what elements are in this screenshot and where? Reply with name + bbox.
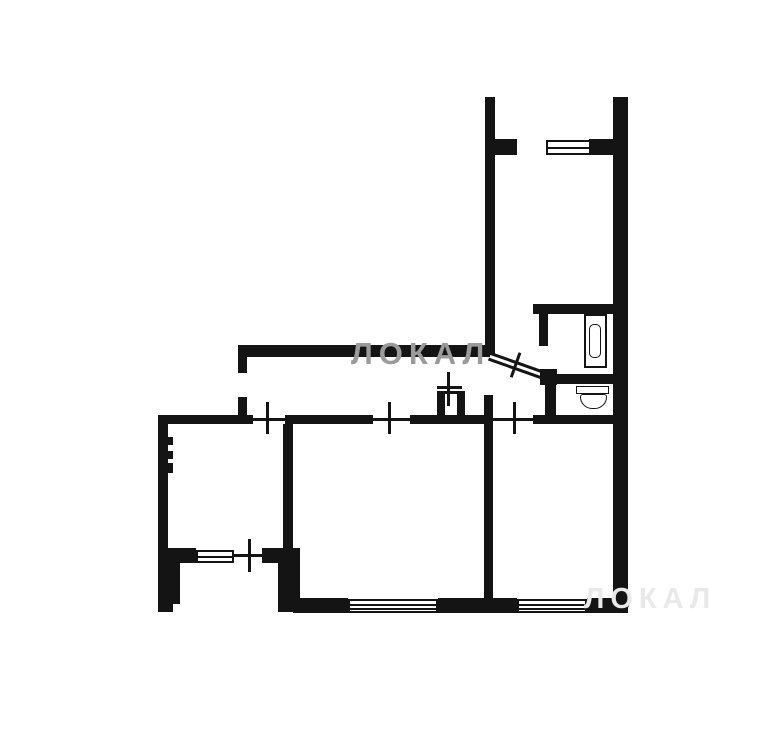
middle-room-door-line	[373, 418, 410, 421]
middle-room-door-cross	[388, 402, 391, 434]
rooms-top-wall-b	[285, 415, 373, 424]
entry-door-marker	[487, 352, 546, 383]
watermark-faint: ЛОКАЛ	[584, 583, 716, 616]
rooms-top-wall-d	[533, 415, 613, 424]
left-wall-notch	[168, 451, 173, 459]
left-wall-upper	[158, 415, 168, 555]
watermark-primary: ЛОКАЛ	[351, 336, 490, 372]
window-line	[349, 608, 437, 610]
floor-plan: ЛОКАЛ ЛОКАЛ	[0, 0, 777, 733]
vent-cross-horizontal	[437, 386, 462, 389]
window-line	[349, 604, 437, 606]
right-room-window-symbol	[517, 599, 587, 613]
balcony-door-cross	[248, 539, 251, 572]
toilet-icon	[576, 386, 609, 394]
vent-shaft-top-line	[437, 391, 465, 394]
rooms-top-wall-c	[410, 415, 493, 424]
rooms-divider-wall	[484, 395, 493, 598]
kitchen-window-symbol	[196, 550, 234, 563]
bottom-wall-a	[293, 598, 348, 613]
outer-right-wall	[613, 97, 628, 613]
toilet-bowl	[580, 394, 607, 409]
bottom-wall-b	[438, 598, 517, 613]
window-line	[518, 608, 586, 610]
closet-connector-wall	[589, 139, 613, 155]
bathtub-basin	[589, 324, 601, 358]
kitchen-bottom-wall-a	[168, 548, 196, 563]
kitchen-right-wall	[283, 424, 293, 550]
kitchen-door-cross	[266, 402, 269, 434]
middle-room-window-symbol	[348, 599, 438, 613]
vent-cross-vertical	[447, 372, 450, 406]
left-wall-notch	[168, 437, 173, 445]
kitchen-door-line	[253, 418, 285, 421]
closet-symbol	[546, 140, 591, 155]
window-line	[518, 604, 586, 606]
left-wall-foot	[158, 598, 173, 612]
closet-symbol-line	[547, 147, 590, 149]
bathroom-left-wall	[539, 314, 548, 346]
vestibule-stub-wall	[495, 139, 517, 155]
right-room-door-cross	[513, 402, 516, 434]
bathroom-top-wall	[533, 304, 613, 314]
vent-shaft-post	[457, 392, 465, 418]
left-wall-notch	[168, 463, 173, 473]
corridor-left-stub-lower	[238, 397, 247, 417]
vent-shaft-icon	[437, 392, 445, 418]
kitchen-window-line	[197, 556, 233, 558]
wc-left-wall	[545, 384, 556, 417]
rooms-top-wall-a	[158, 415, 253, 424]
corridor-left-stub-upper	[238, 345, 247, 373]
hall-left-wall	[485, 97, 495, 355]
